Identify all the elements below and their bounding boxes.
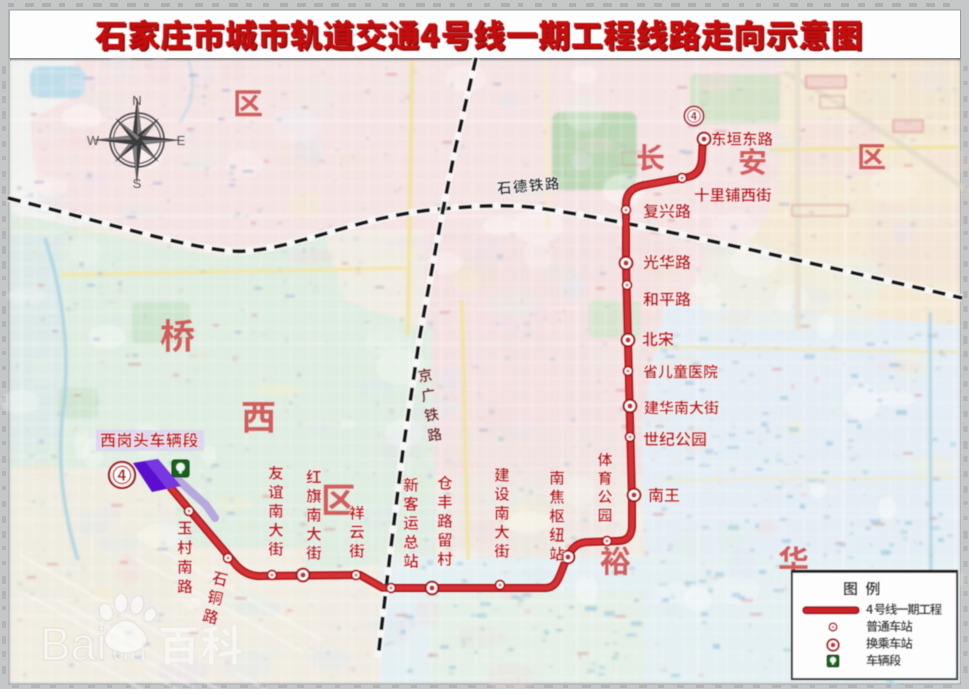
svg-text:N: N <box>132 93 141 108</box>
svg-text:Bai: Bai <box>40 618 106 670</box>
svg-text:S: S <box>133 176 142 191</box>
svg-text:W: W <box>87 133 100 148</box>
svg-text:E: E <box>177 133 186 148</box>
